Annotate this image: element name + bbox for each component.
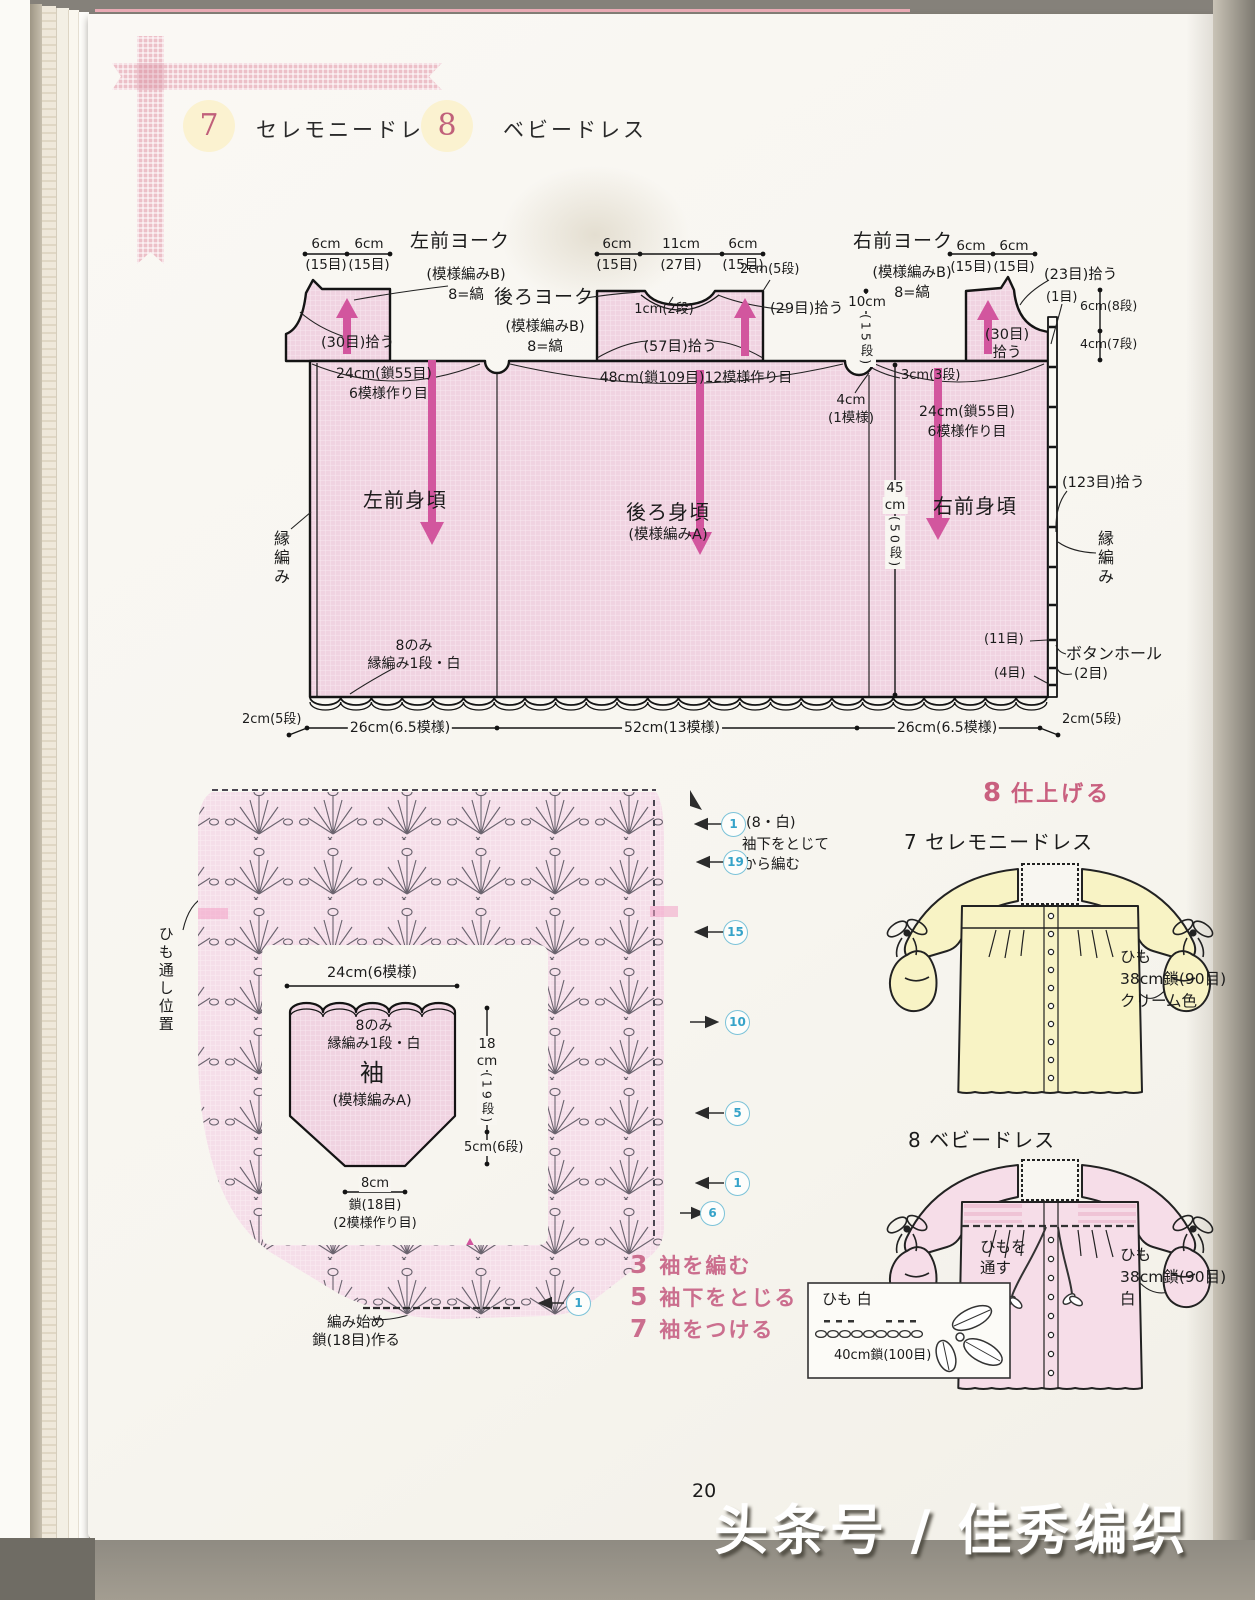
dress-title-7: 7 セレモニードレス <box>904 830 1093 855</box>
cast-on-note: 24cm(鎖55目) <box>919 404 1015 422</box>
pickup-note: (29目)拾う <box>770 300 843 318</box>
thread-note: 通す <box>980 1259 1011 1278</box>
dim: (15目) <box>305 257 346 274</box>
row-note: から編む <box>742 856 800 874</box>
dim: 6cm <box>602 236 631 253</box>
rows-note: 6cm(8段) <box>1080 298 1137 314</box>
step-text: 袖下をとじる <box>659 1286 797 1310</box>
dim: 6cm <box>999 238 1028 255</box>
step-item: 5袖下をとじる <box>630 1282 797 1312</box>
cord-note: 白 <box>1120 1290 1136 1309</box>
cord-note: 38cm鎖(90目) <box>1120 1268 1226 1287</box>
piece-title-right-front: 右前身頃 <box>933 494 1017 519</box>
dim: 11cm <box>662 236 700 253</box>
dim: 6cm <box>728 236 757 253</box>
pickup-note: (23目)拾う <box>1044 266 1117 284</box>
dim: (15目) <box>950 259 991 276</box>
neck-note: 1cm(2段) <box>634 302 694 318</box>
start-note: 編み始め <box>327 1314 385 1332</box>
buttonhole-count: (2目) <box>1074 666 1108 684</box>
rows-note: 4cm(7段) <box>1080 336 1137 352</box>
step-text: 袖を編む <box>659 1254 751 1278</box>
edging-note-left: 縁編み <box>270 530 290 587</box>
dim: 6cm <box>956 238 985 255</box>
page-number: 20 <box>692 1480 716 1504</box>
rows-note: 2cm(5段) <box>740 262 800 278</box>
row-note: (8・白) <box>746 814 796 832</box>
pattern-note: (模様編みA) <box>628 526 707 544</box>
finishing-heading: 8仕上げる <box>983 776 1111 808</box>
thread-note: ひもを <box>980 1238 1027 1257</box>
step-number: 3 <box>630 1250 647 1279</box>
pickup-note: (57目)拾う <box>643 338 716 356</box>
sleeve-note: 縁編み1段・白 <box>328 1036 421 1054</box>
pattern-note: (模様編みB) <box>505 318 584 336</box>
hem-edge: 2cm(5段) <box>1062 712 1122 728</box>
pattern-note: (模様編みA) <box>332 1092 411 1110</box>
stitch-mark: (4目) <box>994 666 1025 682</box>
cast-on-note: 48cm(鎖109目)12模様作り目 <box>600 370 793 388</box>
row-number-badge: 1 <box>566 1291 591 1316</box>
gap-rows: (15段) <box>856 314 876 367</box>
box-cord-label: ひも 白 <box>822 1290 872 1309</box>
stripe-note: 8=縞 <box>527 338 563 356</box>
cast-on-note: 6模様作り目 <box>928 424 1007 442</box>
step-number: 7 <box>630 1314 647 1343</box>
piece-title-back-yoke: 後ろヨーク <box>494 286 594 310</box>
dim: (15目) <box>596 257 637 274</box>
stitch-note: (1目) <box>1046 290 1077 306</box>
pattern-note: (模様編みB) <box>426 266 505 284</box>
row-number-badge: 1 <box>721 812 746 837</box>
sleeve-note: 8のみ <box>356 1018 393 1036</box>
hem-scallops-2 <box>310 702 1047 710</box>
dim: (15目) <box>993 259 1034 276</box>
chain-note: (2模様作り目) <box>333 1216 416 1232</box>
step-number: 5 <box>630 1282 647 1311</box>
row-note: 袖下をとじて <box>742 836 829 854</box>
scanned-book-page: 7 セレモニードレス 8 ベビードレス 6cm 6cm (15目) (15目) … <box>0 0 1255 1600</box>
dress-title-8: 8 ベビードレス <box>908 1128 1055 1153</box>
underarm-note: (1模様) <box>828 410 874 427</box>
dim: 6cm <box>311 236 340 253</box>
step-item: 3袖を編む <box>630 1250 751 1280</box>
dim: (27目) <box>660 257 701 274</box>
piece-title-sleeve: 袖 <box>360 1058 384 1088</box>
piece-title-left-front: 左前身頃 <box>363 488 447 513</box>
hem-edge: 2cm(5段) <box>242 712 302 728</box>
buttonhole-label: ボタンホール <box>1066 644 1162 664</box>
step-text: 袖をつける <box>659 1318 774 1342</box>
cast-on-note: 6模様作り目 <box>349 386 428 404</box>
sleeve-width: 24cm(6模様) <box>325 964 419 982</box>
slit-note: 3cm(3段) <box>901 368 961 384</box>
box-chain-label: 40cm鎖(100目) <box>834 1348 931 1364</box>
pickup-note: (30目)拾う <box>321 334 394 352</box>
underarm-note: 4cm <box>836 392 865 409</box>
pickup-note: (30目) <box>985 326 1029 344</box>
stitch-mark: (11目) <box>984 632 1024 648</box>
hem-width: 52cm(13模様) <box>622 720 722 738</box>
row-number-badge: 10 <box>725 1010 750 1035</box>
hem-note: 縁編み1段・白 <box>368 656 461 674</box>
cord-position-note: ひも通し位置 <box>156 926 175 1034</box>
cord-note: 38cm鎖(90目) <box>1120 970 1226 989</box>
pickup-note: 拾う <box>993 344 1022 362</box>
row-number-badge: 15 <box>723 920 748 945</box>
pattern-note: (模様編みB) <box>872 264 951 282</box>
start-note: 鎖(18目)作る <box>312 1332 400 1350</box>
hem-width: 26cm(6.5模様) <box>348 720 452 738</box>
dim: 6cm <box>354 236 383 253</box>
step-item: 7袖をつける <box>630 1314 774 1344</box>
hem-note: 8のみ <box>396 638 433 656</box>
piece-title-left-yoke: 左前ヨーク <box>410 230 510 254</box>
gap-height: 10cm <box>846 294 888 311</box>
sleeve-height: 18 <box>476 1036 497 1053</box>
piece-title-back: 後ろ身頃 <box>626 500 710 525</box>
chain-note: 鎖(18目) <box>349 1198 402 1214</box>
watermark: 头条号 / 佳秀编织 <box>714 1486 1189 1565</box>
body-rows: (50段) <box>885 516 905 569</box>
row-number-badge: 1 <box>725 1171 750 1196</box>
row-number-badge: 19 <box>723 850 748 875</box>
finishing-number: 8 <box>983 778 1001 808</box>
sleeve-height: cm <box>475 1053 500 1070</box>
sleeve-rows: (19段) <box>477 1072 497 1125</box>
stripe-note: 8=縞 <box>448 286 484 304</box>
row-number-badge: 6 <box>700 1201 725 1226</box>
row-number-badge: 5 <box>725 1101 750 1126</box>
cord-note: クリーム色 <box>1120 992 1197 1011</box>
sleeve-bottom-width: 8cm <box>359 1176 391 1192</box>
cuff-rows: 5cm(6段) <box>462 1140 526 1156</box>
body-height: cm <box>883 497 908 514</box>
pickup-note: (123目)拾う <box>1062 474 1145 492</box>
edging-note-right: 縁編み <box>1094 530 1114 587</box>
cord-note: ひも <box>1120 948 1151 967</box>
dim: (15目) <box>348 257 389 274</box>
cast-on-note: 24cm(鎖55目) <box>336 366 432 384</box>
piece-title-right-yoke: 右前ヨーク <box>853 230 953 254</box>
cord-note: ひも <box>1120 1246 1151 1265</box>
hem-width: 26cm(6.5模様) <box>895 720 999 738</box>
body-height: 45 <box>884 480 905 497</box>
stripe-note: 8=縞 <box>894 284 930 302</box>
finishing-text: 仕上げる <box>1011 782 1111 807</box>
